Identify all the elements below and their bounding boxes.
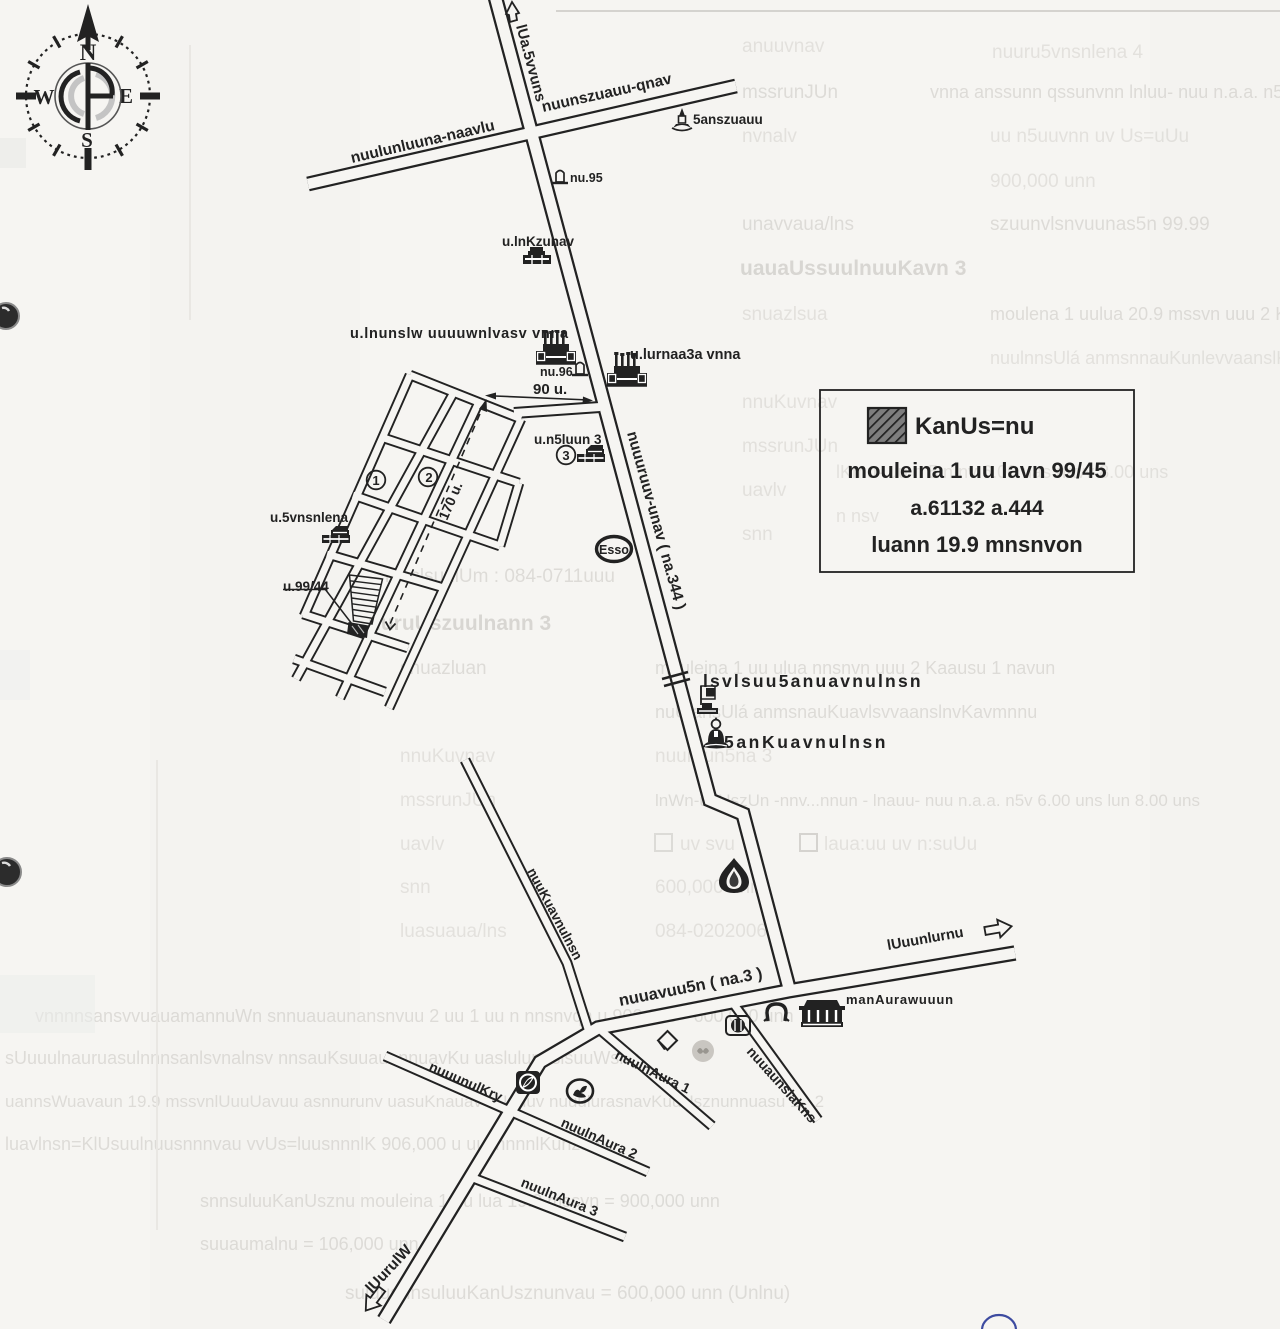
svg-text:N: N: [80, 40, 97, 65]
svg-text:2: 2: [425, 470, 432, 485]
svg-text:szuunvlsnvuunas5n 99.99: szuunvlsnvuunas5n 99.99: [990, 214, 1210, 235]
svg-text:nnuKuvnav: nnuKuvnav: [400, 746, 496, 767]
svg-text:uv svu: uv svu: [680, 834, 735, 855]
svg-text:u.5vnsnlena: u.5vnsnlena: [270, 510, 349, 525]
svg-text:snuazlsua: snuazlsua: [742, 304, 828, 325]
svg-text:u.lnunslw uuuuwnlvasv vnna: u.lnunslw uuuuwnlvasv vnna: [350, 326, 569, 342]
svg-text:a.61132 a.444: a.61132 a.444: [910, 497, 1043, 520]
svg-text:nu.96: nu.96: [540, 365, 573, 379]
svg-text:nuuru5vnsnlena 4: nuuru5vnsnlena 4: [992, 42, 1143, 63]
svg-text:mouleina 1 uu lavn 99/45: mouleina 1 uu lavn 99/45: [847, 458, 1106, 483]
svg-text:anuuvnav: anuuvnav: [742, 36, 825, 57]
svg-text:uannsWuavaun 19.9 mssvnlUuuUav: uannsWuavaun 19.9 mssvnlUuuUavuu asnnuru…: [5, 1092, 824, 1111]
svg-text:5anszuauu: 5anszuauu: [693, 112, 763, 127]
svg-text:uavlv: uavlv: [400, 834, 445, 855]
svg-text:nvnalv: nvnalv: [742, 126, 797, 147]
svg-text:084-0202006: 084-0202006: [655, 921, 767, 942]
svg-text:u.lurnaa3a vnna: u.lurnaa3a vnna: [630, 347, 741, 363]
svg-text:luasuaua/lns: luasuaua/lns: [400, 921, 507, 942]
svg-text:900,000 unn: 900,000 unn: [990, 171, 1096, 192]
svg-text:mssrunJUn: mssrunJUn: [742, 82, 838, 103]
svg-text:5anKuavnulnsn: 5anKuavnulnsn: [724, 732, 888, 752]
svg-text:nu.95: nu.95: [570, 171, 603, 185]
svg-text:suuaumalnu = 106,000 unn: suuaumalnu = 106,000 unn: [200, 1234, 419, 1254]
svg-text:uavlv: uavlv: [742, 480, 787, 501]
svg-text:S: S: [81, 128, 93, 152]
svg-text:n nsv: n nsv: [836, 506, 879, 526]
svg-text:Esso: Esso: [599, 543, 629, 557]
svg-text:W: W: [34, 85, 55, 109]
svg-text:laua:uu uv n:suUu: laua:uu uv n:suUu: [824, 834, 977, 855]
svg-text:unavvaua/lns: unavvaua/lns: [742, 214, 854, 235]
svg-text:u.n5luun 3: u.n5luun 3: [534, 432, 602, 447]
svg-text:luavlnsn=KlUsuulnuusnnnvau vv: luavlnsn=KlUsuulnuusnnnvau vvUs=luusnnnl…: [5, 1134, 600, 1154]
svg-text:90 u.: 90 u.: [533, 381, 567, 398]
svg-text:uu n5uuvnn uv Us=uUu: uu n5uuvnn uv Us=uUu: [990, 126, 1189, 147]
svg-text:snn: snn: [400, 877, 431, 898]
svg-text:mssrunJUn: mssrunJUn: [742, 436, 838, 457]
svg-text:nuulnnsUlá anmsnnauKunlevvaans: nuulnnsUlá anmsnnauKunlevvaanslKvKavmnnu: [990, 348, 1280, 368]
svg-text:u.99/44: u.99/44: [283, 579, 329, 594]
svg-text:vnna anssunn qssunvnn lnluu-: vnna anssunn qssunvnn lnluu- nuu n.a.a. …: [930, 82, 1280, 102]
svg-text:1: 1: [372, 473, 379, 488]
svg-text:lsvlsuu5anuavnulnsn: lsvlsuu5anuavnulnsn: [703, 671, 923, 691]
svg-text:nnuKuvnav: nnuKuvnav: [742, 392, 838, 413]
svg-text:KanUs=nu: KanUs=nu: [915, 413, 1034, 440]
svg-text:manAurawuuun: manAurawuuun: [846, 992, 954, 1007]
svg-text:snn: snn: [742, 524, 773, 545]
svg-text:3: 3: [562, 448, 569, 463]
svg-text:u.lnKzunav: u.lnKzunav: [502, 234, 574, 249]
svg-text:uauaUssuulnuuKavn 3: uauaUssuulnuuKavn 3: [740, 257, 966, 280]
svg-text:moulena 1 uulua 20.9 mssvn uu: moulena 1 uulua 20.9 mssvn uuu 2 Kavuau …: [990, 304, 1280, 324]
svg-text:luann 19.9 mnsnvon: luann 19.9 mnsnvon: [871, 532, 1083, 557]
